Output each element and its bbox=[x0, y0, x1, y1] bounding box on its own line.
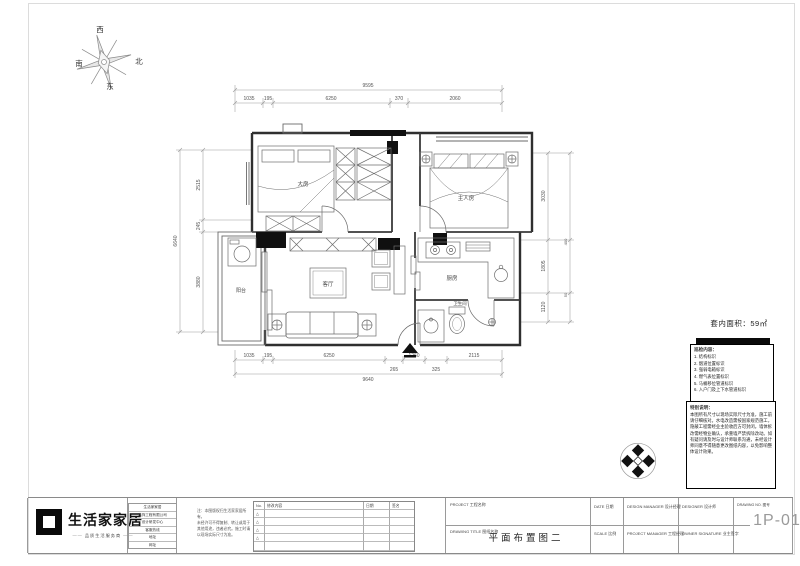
company-logo bbox=[36, 509, 62, 535]
rev-cell bbox=[364, 526, 390, 534]
rev-cell bbox=[265, 518, 364, 526]
dim-label: 1120 bbox=[541, 301, 547, 312]
rev-cell bbox=[364, 510, 390, 518]
compass-west-label: 西 bbox=[96, 25, 104, 34]
legend-box: 巡检内容： 1. 结构标识 2. 烟道位置标识 3. 强弱电箱标识 4. 燃气表… bbox=[690, 344, 774, 402]
rev-cell bbox=[265, 510, 364, 518]
dim-label: 245 bbox=[196, 222, 202, 231]
rev-cell bbox=[265, 542, 364, 550]
washbasin bbox=[418, 310, 444, 342]
notes-title: 特别说明： bbox=[690, 405, 772, 411]
dim-label: 195 bbox=[264, 96, 273, 102]
note-line: 以现场实际尺寸为准。 bbox=[197, 532, 253, 538]
legend-item: 1. 结构标识 bbox=[694, 354, 770, 361]
dim-label: 3030 bbox=[541, 190, 547, 201]
owner-signature-label: OWNER SIGNATURE 业主签字 bbox=[682, 531, 739, 537]
dim-label: 1805 bbox=[541, 260, 547, 271]
washing-machine bbox=[228, 238, 256, 266]
rev-cell bbox=[390, 510, 414, 518]
legend-item: 2. 烟道位置标识 bbox=[694, 361, 770, 368]
dim-label: 1035 bbox=[243, 96, 254, 102]
drawing-no-label: DRAWING NO. 图号 bbox=[737, 503, 770, 508]
entry-arrow-icon bbox=[402, 343, 418, 358]
dim-label: 2115 bbox=[469, 353, 480, 359]
copyright-notes: 注：本图版权归生活家家居所有， 未经许可不得复制、转让或用于 其他用途，违者必究… bbox=[197, 508, 253, 538]
room-label-bedroom: 大房 bbox=[297, 180, 309, 188]
rev-header: 日期 bbox=[364, 502, 390, 510]
tv-cabinet bbox=[290, 238, 376, 251]
rev-cell bbox=[265, 534, 364, 542]
divider bbox=[445, 525, 750, 526]
dim-top-total: 9595 bbox=[362, 83, 373, 89]
bed-master bbox=[420, 152, 518, 228]
scale-label: SCALE 比例 bbox=[594, 531, 616, 537]
drawing-number: 1P-01 bbox=[735, 512, 800, 530]
room-label-master: 主人房 bbox=[458, 194, 475, 202]
wardrobe bbox=[336, 148, 391, 200]
rev-cell bbox=[390, 542, 414, 550]
dim-label: 1035 bbox=[243, 353, 254, 359]
dim-label: 325 bbox=[432, 367, 441, 373]
divider bbox=[27, 498, 28, 553]
legend-title: 巡检内容： bbox=[694, 347, 770, 353]
floor-drain-icon bbox=[489, 319, 496, 326]
note-line: 注：本图版权归生活家家居所有， bbox=[197, 508, 253, 520]
room-label-bath: 卫生间 bbox=[453, 300, 466, 307]
legend-item: 4. 燃气表位置标识 bbox=[694, 374, 770, 381]
dim-label: 195 bbox=[264, 353, 273, 359]
rev-cell bbox=[254, 542, 265, 550]
company-info-table: 生活家家居 装饰工程有限公司 设计研发中心 客服热线 地址 网址 bbox=[128, 503, 177, 549]
company-row: 网址 bbox=[129, 542, 176, 549]
rev-header: 修改内容 bbox=[265, 502, 364, 510]
rev-cell bbox=[364, 518, 390, 526]
designer-label: DESIGNER 设计师 bbox=[682, 504, 716, 510]
room-label-balcony: 阳台 bbox=[236, 287, 246, 294]
room-label-kitchen: 厨房 bbox=[446, 274, 458, 282]
rev-cell bbox=[390, 518, 414, 526]
dim-label: 6250 bbox=[325, 96, 336, 102]
diamond-ornament-icon bbox=[615, 440, 661, 482]
dim-label: 2060 bbox=[449, 96, 460, 102]
rev-mark: △ bbox=[254, 534, 265, 542]
room-label-living: 客厅 bbox=[322, 280, 334, 288]
revision-table: No. 修改内容 日期 签名 △ △ △ △ bbox=[253, 501, 415, 552]
dim-label: 370 bbox=[395, 96, 404, 102]
kitchen-counter bbox=[418, 238, 514, 298]
rev-mark: △ bbox=[254, 510, 265, 518]
project-manager-label: PROJECT MANAGER 工程经理 bbox=[627, 531, 684, 537]
dim-label: 3880 bbox=[196, 276, 202, 287]
dim-label: 265 bbox=[390, 367, 399, 373]
company-row: 生活家家居 bbox=[129, 504, 176, 512]
compass-east-label: 东 bbox=[106, 81, 114, 91]
design-manager-label: DESIGN MANAGER 设计经理 bbox=[627, 504, 681, 510]
drawing-title: 平面布置图二 bbox=[445, 530, 607, 544]
notes-body: 本图所有尺寸以现场实际尺寸为准，施工前请仔细核对。水电改造需按国家规范施工，隐蔽… bbox=[690, 412, 772, 456]
rev-header: 签名 bbox=[390, 502, 414, 510]
toilet bbox=[449, 307, 465, 334]
title-block: 生活家家居 品质生活服务商 生活家家居 装饰工程有限公司 设计研发中心 客服热线… bbox=[28, 497, 793, 554]
company-row: 装饰工程有限公司 bbox=[129, 512, 176, 520]
sofa bbox=[268, 312, 376, 338]
company-row: 客服热线 bbox=[129, 527, 176, 535]
dim-label: 2515 bbox=[196, 179, 202, 190]
legend-item: 3. 强弱电箱标识 bbox=[694, 367, 770, 374]
dimension-labels: 9595 1035 195 6250 370 2060 1035 195 625… bbox=[173, 83, 568, 383]
dim-label: 6250 bbox=[323, 353, 334, 359]
legend-item: 5. 马桶移位管道标识 bbox=[694, 381, 770, 388]
rev-cell bbox=[364, 542, 390, 550]
interior-area-text: 套内面积：59㎡ bbox=[694, 318, 784, 329]
rev-header: No. bbox=[254, 502, 265, 510]
floor-plan: 9595 1035 195 6250 370 2060 1035 195 625… bbox=[160, 70, 605, 405]
dresser bbox=[266, 216, 320, 231]
rev-cell bbox=[364, 534, 390, 542]
bed-secondary bbox=[258, 146, 334, 212]
dining-set bbox=[372, 246, 405, 294]
compass-north-label: 北 bbox=[135, 57, 143, 66]
date-label: DATE 日期 bbox=[594, 504, 613, 510]
special-notes-box: 特别说明： 本图所有尺寸以现场实际尺寸为准，施工前请仔细核对。水电改造需按国家规… bbox=[686, 401, 776, 489]
rev-cell bbox=[390, 534, 414, 542]
dim-bottom-total: 9640 bbox=[362, 377, 373, 383]
rev-cell bbox=[390, 526, 414, 534]
company-row: 设计研发中心 bbox=[129, 519, 176, 527]
dim-left-total: 6640 bbox=[173, 235, 179, 246]
compass-south-label: 南 bbox=[75, 58, 83, 68]
company-row: 地址 bbox=[129, 534, 176, 542]
project-label: PROJECT 工程名称 bbox=[450, 502, 486, 508]
rev-mark: △ bbox=[254, 518, 265, 526]
dim-label: 50 bbox=[563, 292, 568, 297]
legend-item: 6. 入户门及上下水管道标识 bbox=[694, 387, 770, 394]
rev-mark: △ bbox=[254, 526, 265, 534]
rev-cell bbox=[265, 526, 364, 534]
dim-label: 400 bbox=[563, 238, 568, 245]
